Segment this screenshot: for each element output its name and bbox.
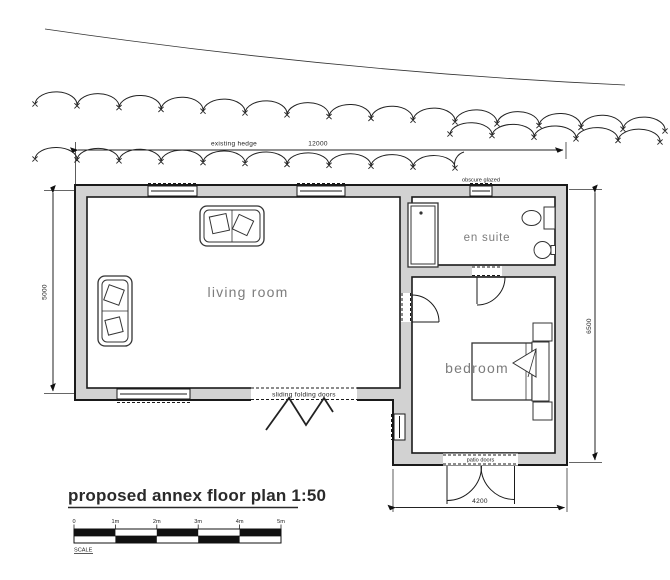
scale-segment: [240, 529, 281, 536]
hedge-row-right: [450, 123, 660, 142]
sofa-top: [200, 206, 264, 246]
scale-label-1: 1m: [112, 519, 120, 525]
patio-doors: patio doors: [443, 454, 518, 505]
sliding-folding-doors: sliding folding doors: [251, 387, 357, 431]
building-walls: [75, 185, 567, 465]
scale-label-0: 0: [72, 519, 75, 525]
scale-segment: [157, 529, 198, 536]
scale-segment: [74, 529, 115, 536]
patio-door-swing-right: [481, 466, 515, 500]
living-room-label: living room: [208, 284, 289, 300]
hedge-dim-value: 12000: [308, 141, 328, 148]
site-boundary-line: [45, 29, 625, 85]
scale-segment: [198, 536, 239, 543]
hedge-label: existing hedge: [211, 141, 257, 148]
scale-label-3: 3m: [194, 519, 202, 525]
drawing-title: proposed annex floor plan 1:50: [68, 486, 326, 505]
hedge-row-lower: [35, 147, 464, 168]
hedge-row-upper-marks: [32, 101, 667, 133]
scale-bar: 0 1m 2m 3m 4m 5m SCALE: [72, 519, 285, 554]
window-bedroom-side: [392, 414, 406, 440]
patio-door-swing-left: [447, 466, 482, 501]
bedside-table-top: [533, 323, 552, 341]
scale-caption: SCALE: [74, 548, 93, 554]
obscure-glazed-label: obscure glazed: [462, 178, 500, 184]
existing-hedge: [32, 92, 667, 171]
scale-segment: [115, 536, 156, 543]
floor-plan-page: existing hedge 12000 obscure glazed: [0, 0, 670, 580]
scale-label-2: 2m: [153, 519, 161, 525]
dim-right-value: 6500: [586, 318, 593, 334]
bedroom-label: bedroom: [445, 360, 509, 376]
bedside-table-bottom: [533, 402, 552, 420]
hedge-row-right-marks: [447, 131, 662, 144]
scale-bar-graphic: [74, 525, 281, 544]
basin-tap: [551, 246, 556, 255]
dimension-right: 6500: [569, 190, 602, 463]
scale-label-4: 4m: [236, 519, 244, 525]
title-block: proposed annex floor plan 1:50: [68, 486, 326, 508]
hedge-row-upper: [35, 92, 665, 131]
sliding-doors-label: sliding folding doors: [272, 392, 336, 399]
scale-label-5: 5m: [277, 519, 285, 525]
floor-plan-drawing: existing hedge 12000 obscure glazed: [0, 0, 670, 580]
ensuite-label: en suite: [464, 232, 511, 244]
dimension-left: 5000: [42, 191, 75, 394]
folding-door-symbol: [266, 398, 333, 430]
dim-left-value: 5000: [42, 284, 49, 300]
sofa-left: [98, 276, 132, 346]
hedge-row-lower-marks: [32, 156, 457, 170]
shower: [408, 203, 438, 267]
shower-head: [419, 211, 422, 214]
patio-doors-label: patio doors: [467, 458, 495, 464]
dim-bottom-value: 4200: [472, 498, 488, 505]
